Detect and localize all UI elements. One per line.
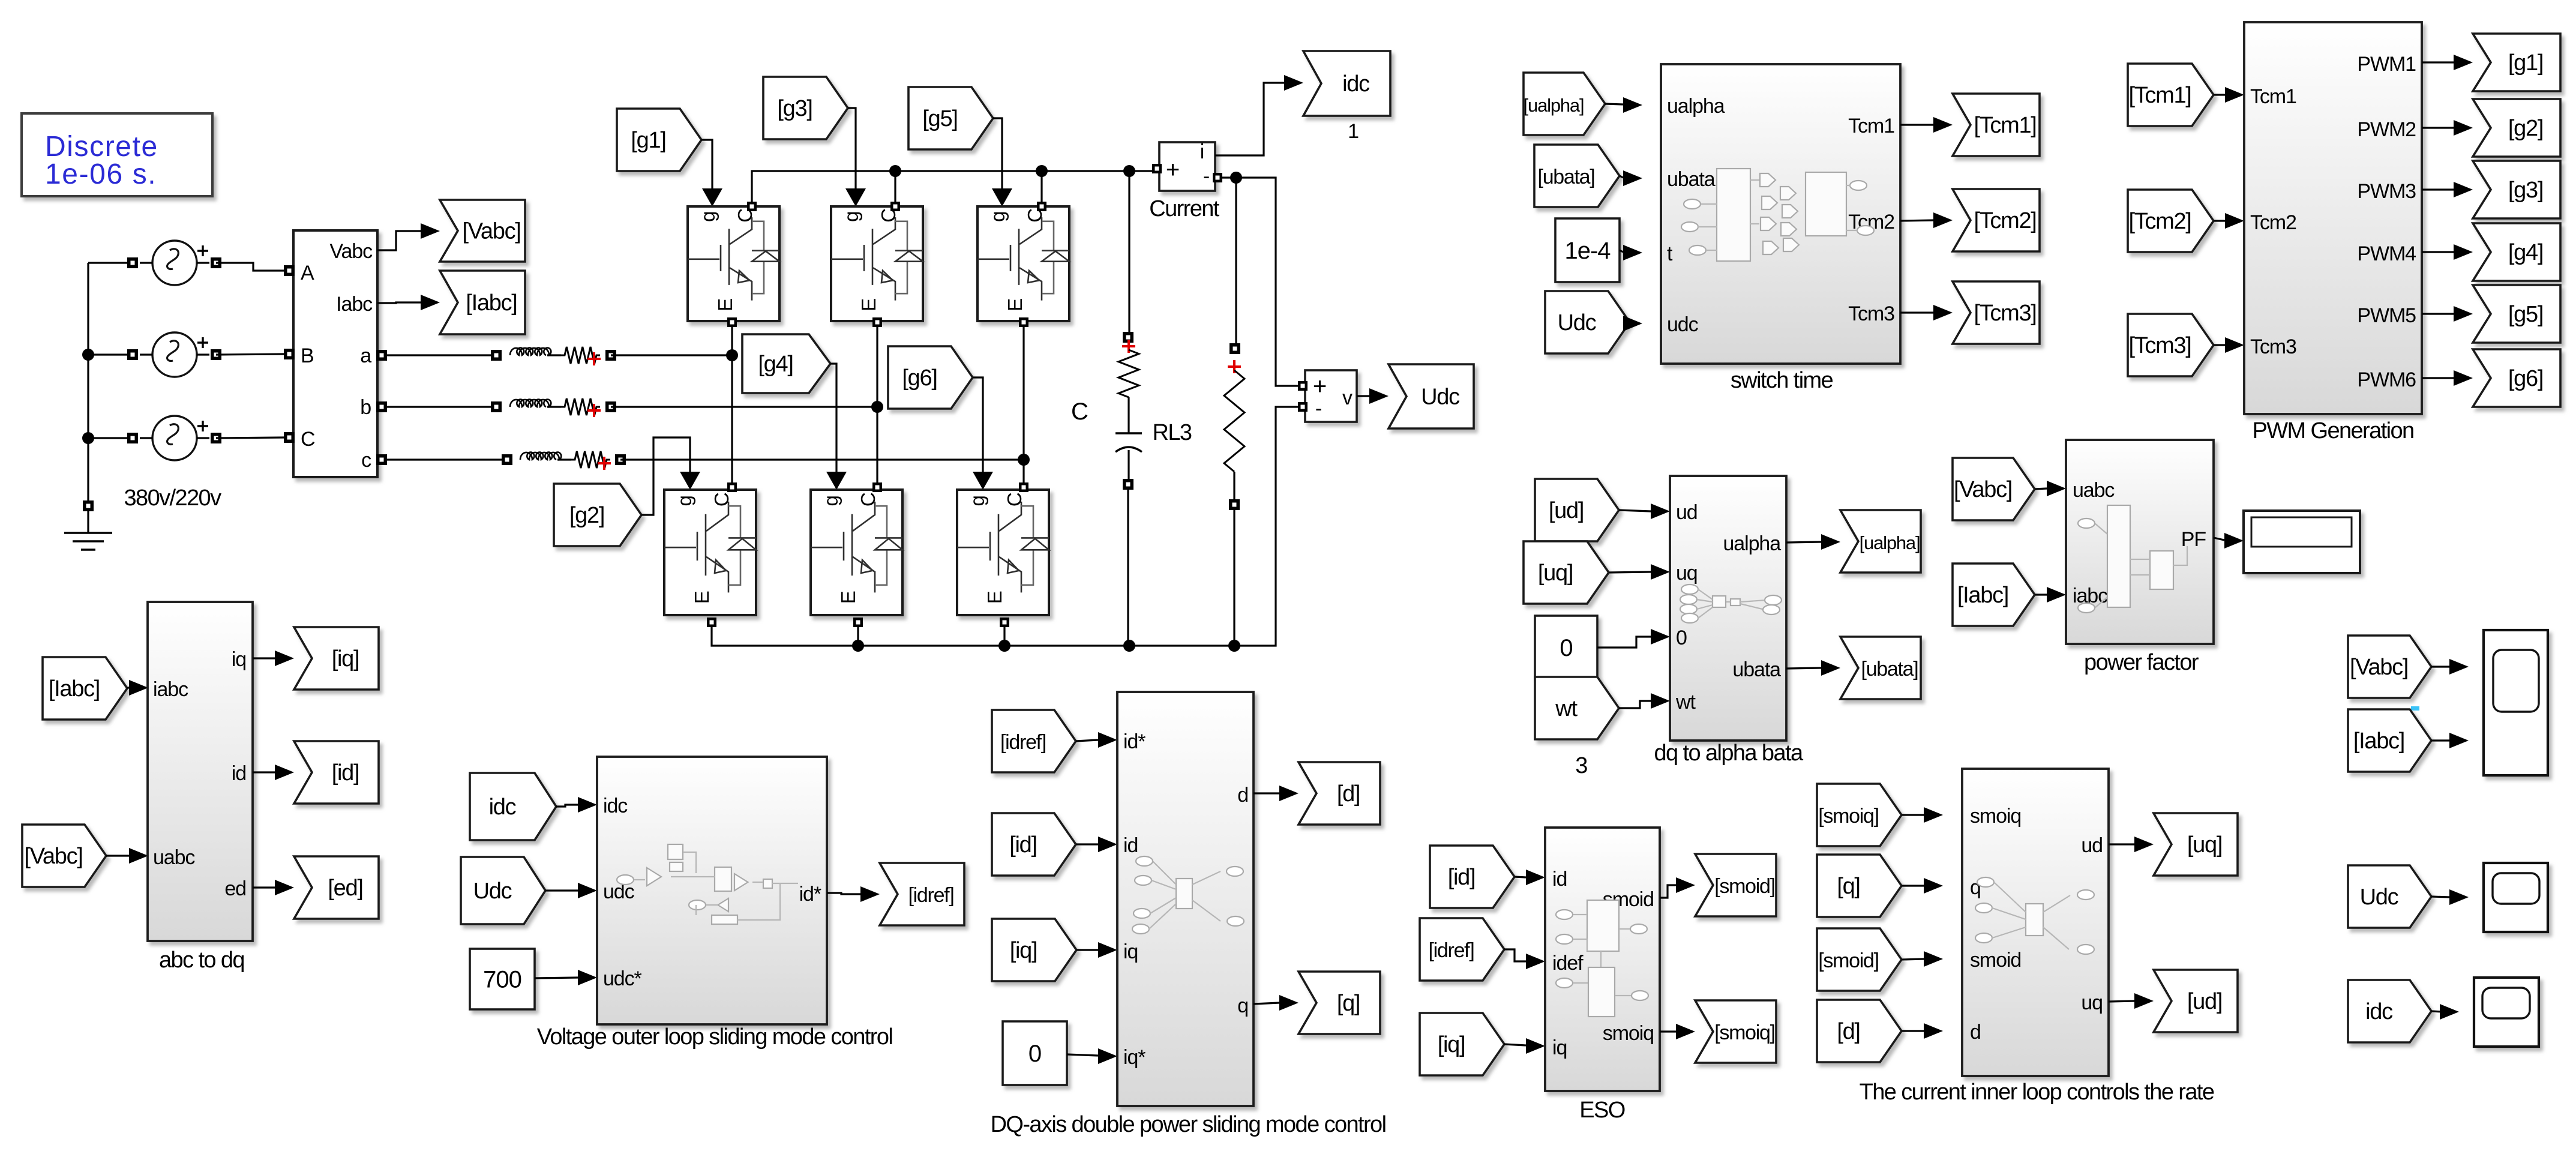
svg-text:[g4]: [g4] [758, 352, 793, 377]
svg-text:iq: iq [1552, 1036, 1567, 1059]
svg-text:E: E [837, 591, 859, 604]
svg-text:+: + [1313, 373, 1326, 400]
svg-text:[Tcm2]: [Tcm2] [2128, 209, 2191, 234]
svg-text:g: g [697, 212, 719, 222]
svg-text:uabc: uabc [153, 846, 195, 869]
svg-text:idc: idc [1342, 71, 1369, 97]
svg-text:C: C [710, 493, 733, 506]
svg-text:iq: iq [232, 648, 246, 671]
svg-text:[uq]: [uq] [2187, 832, 2222, 858]
svg-text:[smoiq]: [smoiq] [1818, 805, 1879, 828]
svg-text:[g3]: [g3] [2508, 178, 2543, 203]
svg-text:g: g [986, 212, 1009, 222]
svg-text:b: b [360, 396, 371, 419]
svg-text:smoiq: smoiq [1970, 805, 2021, 828]
svg-text:idc: idc [489, 795, 516, 820]
svg-text:[ualpha]: [ualpha] [1524, 95, 1584, 116]
svg-text:ESO: ESO [1579, 1098, 1624, 1123]
svg-text:ud: ud [2081, 834, 2103, 857]
svg-text:[Tcm3]: [Tcm3] [2128, 333, 2191, 358]
svg-text:[g3]: [g3] [777, 96, 812, 121]
svg-text:RL3: RL3 [1153, 420, 1192, 445]
svg-text:Vabc: Vabc [329, 240, 373, 263]
svg-text:[g6]: [g6] [2508, 366, 2543, 391]
svg-text:[uq]: [uq] [1538, 560, 1573, 586]
svg-text:idc: idc [2365, 999, 2392, 1024]
svg-text:C: C [1071, 398, 1088, 425]
svg-text:3: 3 [1575, 753, 1587, 778]
svg-text:iq: iq [1123, 940, 1138, 963]
svg-text:1: 1 [1348, 120, 1359, 143]
svg-text:[Tcm3]: [Tcm3] [1974, 301, 2036, 326]
svg-text:[Vabc]: [Vabc] [2350, 655, 2408, 680]
svg-text:[Tcm1]: [Tcm1] [2128, 83, 2191, 108]
svg-text:idef: idef [1552, 952, 1584, 975]
svg-text:DQ-axis double power sliding m: DQ-axis double power sliding mode contro… [991, 1112, 1386, 1137]
svg-text:E: E [857, 299, 880, 311]
svg-text:wt: wt [1675, 691, 1696, 714]
svg-text:[smoiq]: [smoiq] [1714, 1021, 1775, 1044]
svg-text:[Tcm1]: [Tcm1] [1974, 113, 2036, 138]
svg-text:A: A [301, 262, 314, 284]
svg-text:700: 700 [483, 967, 521, 993]
svg-text:380v/220v: 380v/220v [124, 485, 222, 511]
svg-text:[g5]: [g5] [922, 106, 957, 131]
svg-text:Udc: Udc [1558, 310, 1596, 335]
svg-text:[id]: [id] [332, 760, 359, 786]
svg-text:[g5]: [g5] [2508, 302, 2543, 327]
svg-text:E: E [691, 591, 713, 604]
svg-text:E: E [714, 299, 736, 311]
svg-text:i: i [1200, 140, 1204, 163]
svg-text:smoiq: smoiq [1603, 1022, 1654, 1045]
svg-text:[g4]: [g4] [2508, 240, 2543, 265]
svg-text:PWM3: PWM3 [2357, 180, 2416, 203]
svg-text:udc*: udc* [603, 967, 642, 990]
svg-text:[Iabc]: [Iabc] [49, 676, 100, 702]
svg-text:idc: idc [603, 795, 628, 817]
svg-text:0: 0 [1028, 1041, 1041, 1067]
svg-text:[d]: [d] [1837, 1019, 1860, 1044]
svg-text:id: id [232, 762, 246, 785]
svg-text:id: id [1552, 868, 1567, 891]
svg-text:[q]: [q] [1837, 874, 1860, 899]
svg-text:g: g [966, 496, 988, 506]
svg-text:PWM4: PWM4 [2357, 242, 2416, 265]
svg-text:[g6]: [g6] [902, 365, 937, 391]
svg-text:Tcm3: Tcm3 [2250, 335, 2296, 358]
svg-text:[idref]: [idref] [1000, 731, 1046, 754]
svg-text:[g1]: [g1] [631, 128, 665, 153]
svg-text:switch time: switch time [1731, 368, 1833, 393]
svg-text:[Vabc]: [Vabc] [24, 844, 82, 869]
svg-text:[idref]: [idref] [1429, 939, 1474, 962]
svg-text:iq*: iq* [1123, 1046, 1145, 1069]
svg-text:Current: Current [1149, 196, 1220, 221]
svg-text:id: id [1123, 834, 1138, 857]
svg-text:power factor: power factor [2084, 650, 2199, 675]
svg-text:g: g [840, 212, 862, 222]
svg-text:[smoid]: [smoid] [1714, 875, 1775, 898]
svg-text:[iq]: [iq] [1010, 938, 1037, 963]
svg-text:Tcm2: Tcm2 [2250, 211, 2296, 234]
svg-text:PWM1: PWM1 [2357, 53, 2416, 76]
svg-text:+: + [1166, 157, 1179, 183]
svg-text:[ualpha]: [ualpha] [1860, 532, 1920, 553]
svg-text:[Iabc]: [Iabc] [1957, 583, 2008, 608]
svg-text:uabc: uabc [2073, 479, 2115, 502]
svg-text:uq: uq [1676, 562, 1698, 585]
svg-text:PWM6: PWM6 [2357, 368, 2416, 391]
svg-text:ed: ed [224, 877, 246, 900]
svg-text:PWM2: PWM2 [2357, 118, 2416, 141]
svg-text:0: 0 [1676, 627, 1687, 649]
svg-text:uq: uq [2081, 991, 2103, 1014]
svg-text:ualpha: ualpha [1723, 532, 1782, 555]
svg-text:Tcm3: Tcm3 [1848, 302, 1894, 325]
svg-text:1e-06 s.: 1e-06 s. [45, 158, 157, 190]
svg-text:id*: id* [799, 883, 821, 906]
svg-text:-: - [1315, 397, 1321, 420]
svg-text:ualpha: ualpha [1667, 95, 1725, 118]
svg-text:[ud]: [ud] [2187, 989, 2222, 1014]
svg-text:[ed]: [ed] [328, 876, 362, 901]
svg-text:q: q [1237, 994, 1248, 1017]
svg-text:[Vabc]: [Vabc] [1954, 477, 2012, 502]
svg-text:Tcm1: Tcm1 [2250, 85, 2296, 108]
svg-text:[smoid]: [smoid] [1818, 949, 1879, 972]
svg-text:[g2]: [g2] [569, 503, 604, 528]
svg-text:[Tcm2]: [Tcm2] [1974, 208, 2036, 233]
svg-text:C: C [857, 493, 879, 506]
svg-text:ubata: ubata [1667, 168, 1716, 191]
svg-text:Udc: Udc [2360, 885, 2398, 910]
svg-text:B: B [301, 344, 314, 367]
svg-text:d: d [1970, 1021, 1981, 1044]
svg-text:PWM Generation: PWM Generation [2252, 418, 2413, 443]
svg-text:E: E [983, 591, 1006, 604]
svg-text:Voltage outer loop sliding mod: Voltage outer loop sliding mode control [537, 1024, 892, 1050]
svg-text:-: - [1203, 165, 1209, 188]
svg-text:iabc: iabc [153, 678, 188, 701]
svg-text:[Iabc]: [Iabc] [466, 290, 517, 316]
svg-text:[id]: [id] [1448, 865, 1476, 890]
svg-text:[Iabc]: [Iabc] [2353, 729, 2404, 754]
svg-text:ubata: ubata [1732, 658, 1781, 681]
svg-text:udc: udc [1667, 313, 1699, 336]
svg-text:[ubata]: [ubata] [1861, 658, 1918, 681]
svg-text:[g1]: [g1] [2508, 50, 2543, 76]
svg-text:ud: ud [1676, 501, 1698, 524]
svg-text:abc to dq: abc to dq [159, 948, 244, 973]
svg-text:The current inner loop control: The current inner loop controls the rate [1860, 1080, 2214, 1105]
svg-text:Iabc: Iabc [336, 293, 373, 316]
svg-text:[id]: [id] [1009, 832, 1037, 858]
svg-text:C: C [1003, 493, 1025, 506]
svg-text:[Vabc]: [Vabc] [462, 219, 520, 244]
svg-text:E: E [1004, 299, 1026, 311]
svg-text:Tcm1: Tcm1 [1848, 115, 1894, 137]
svg-text:Udc: Udc [473, 879, 512, 904]
svg-text:smoid: smoid [1970, 949, 2021, 972]
svg-text:id*: id* [1123, 730, 1145, 753]
svg-text:Udc: Udc [1421, 385, 1459, 410]
svg-text:[d]: [d] [1337, 781, 1360, 807]
svg-text:v: v [1342, 386, 1353, 409]
svg-text:d: d [1237, 784, 1248, 807]
svg-text:[ubata]: [ubata] [1538, 166, 1595, 188]
svg-text:1e-4: 1e-4 [1564, 238, 1611, 264]
svg-text:0: 0 [1560, 635, 1572, 661]
svg-text:[idref]: [idref] [908, 884, 954, 907]
svg-text:C: C [301, 428, 315, 451]
svg-text:[q]: [q] [1337, 991, 1360, 1016]
svg-text:dq to alpha bata: dq to alpha bata [1654, 741, 1804, 766]
svg-text:a: a [360, 344, 371, 367]
svg-text:[iq]: [iq] [332, 646, 359, 672]
svg-text:[iq]: [iq] [1438, 1032, 1465, 1057]
svg-text:g: g [673, 496, 695, 506]
svg-text:[g2]: [g2] [2508, 116, 2543, 141]
svg-text:c: c [361, 449, 371, 472]
svg-text:PF: PF [2181, 528, 2206, 551]
svg-text:wt: wt [1555, 696, 1578, 721]
svg-text:g: g [820, 496, 842, 506]
svg-text:PWM5: PWM5 [2357, 304, 2416, 327]
svg-text:[ud]: [ud] [1549, 498, 1584, 523]
